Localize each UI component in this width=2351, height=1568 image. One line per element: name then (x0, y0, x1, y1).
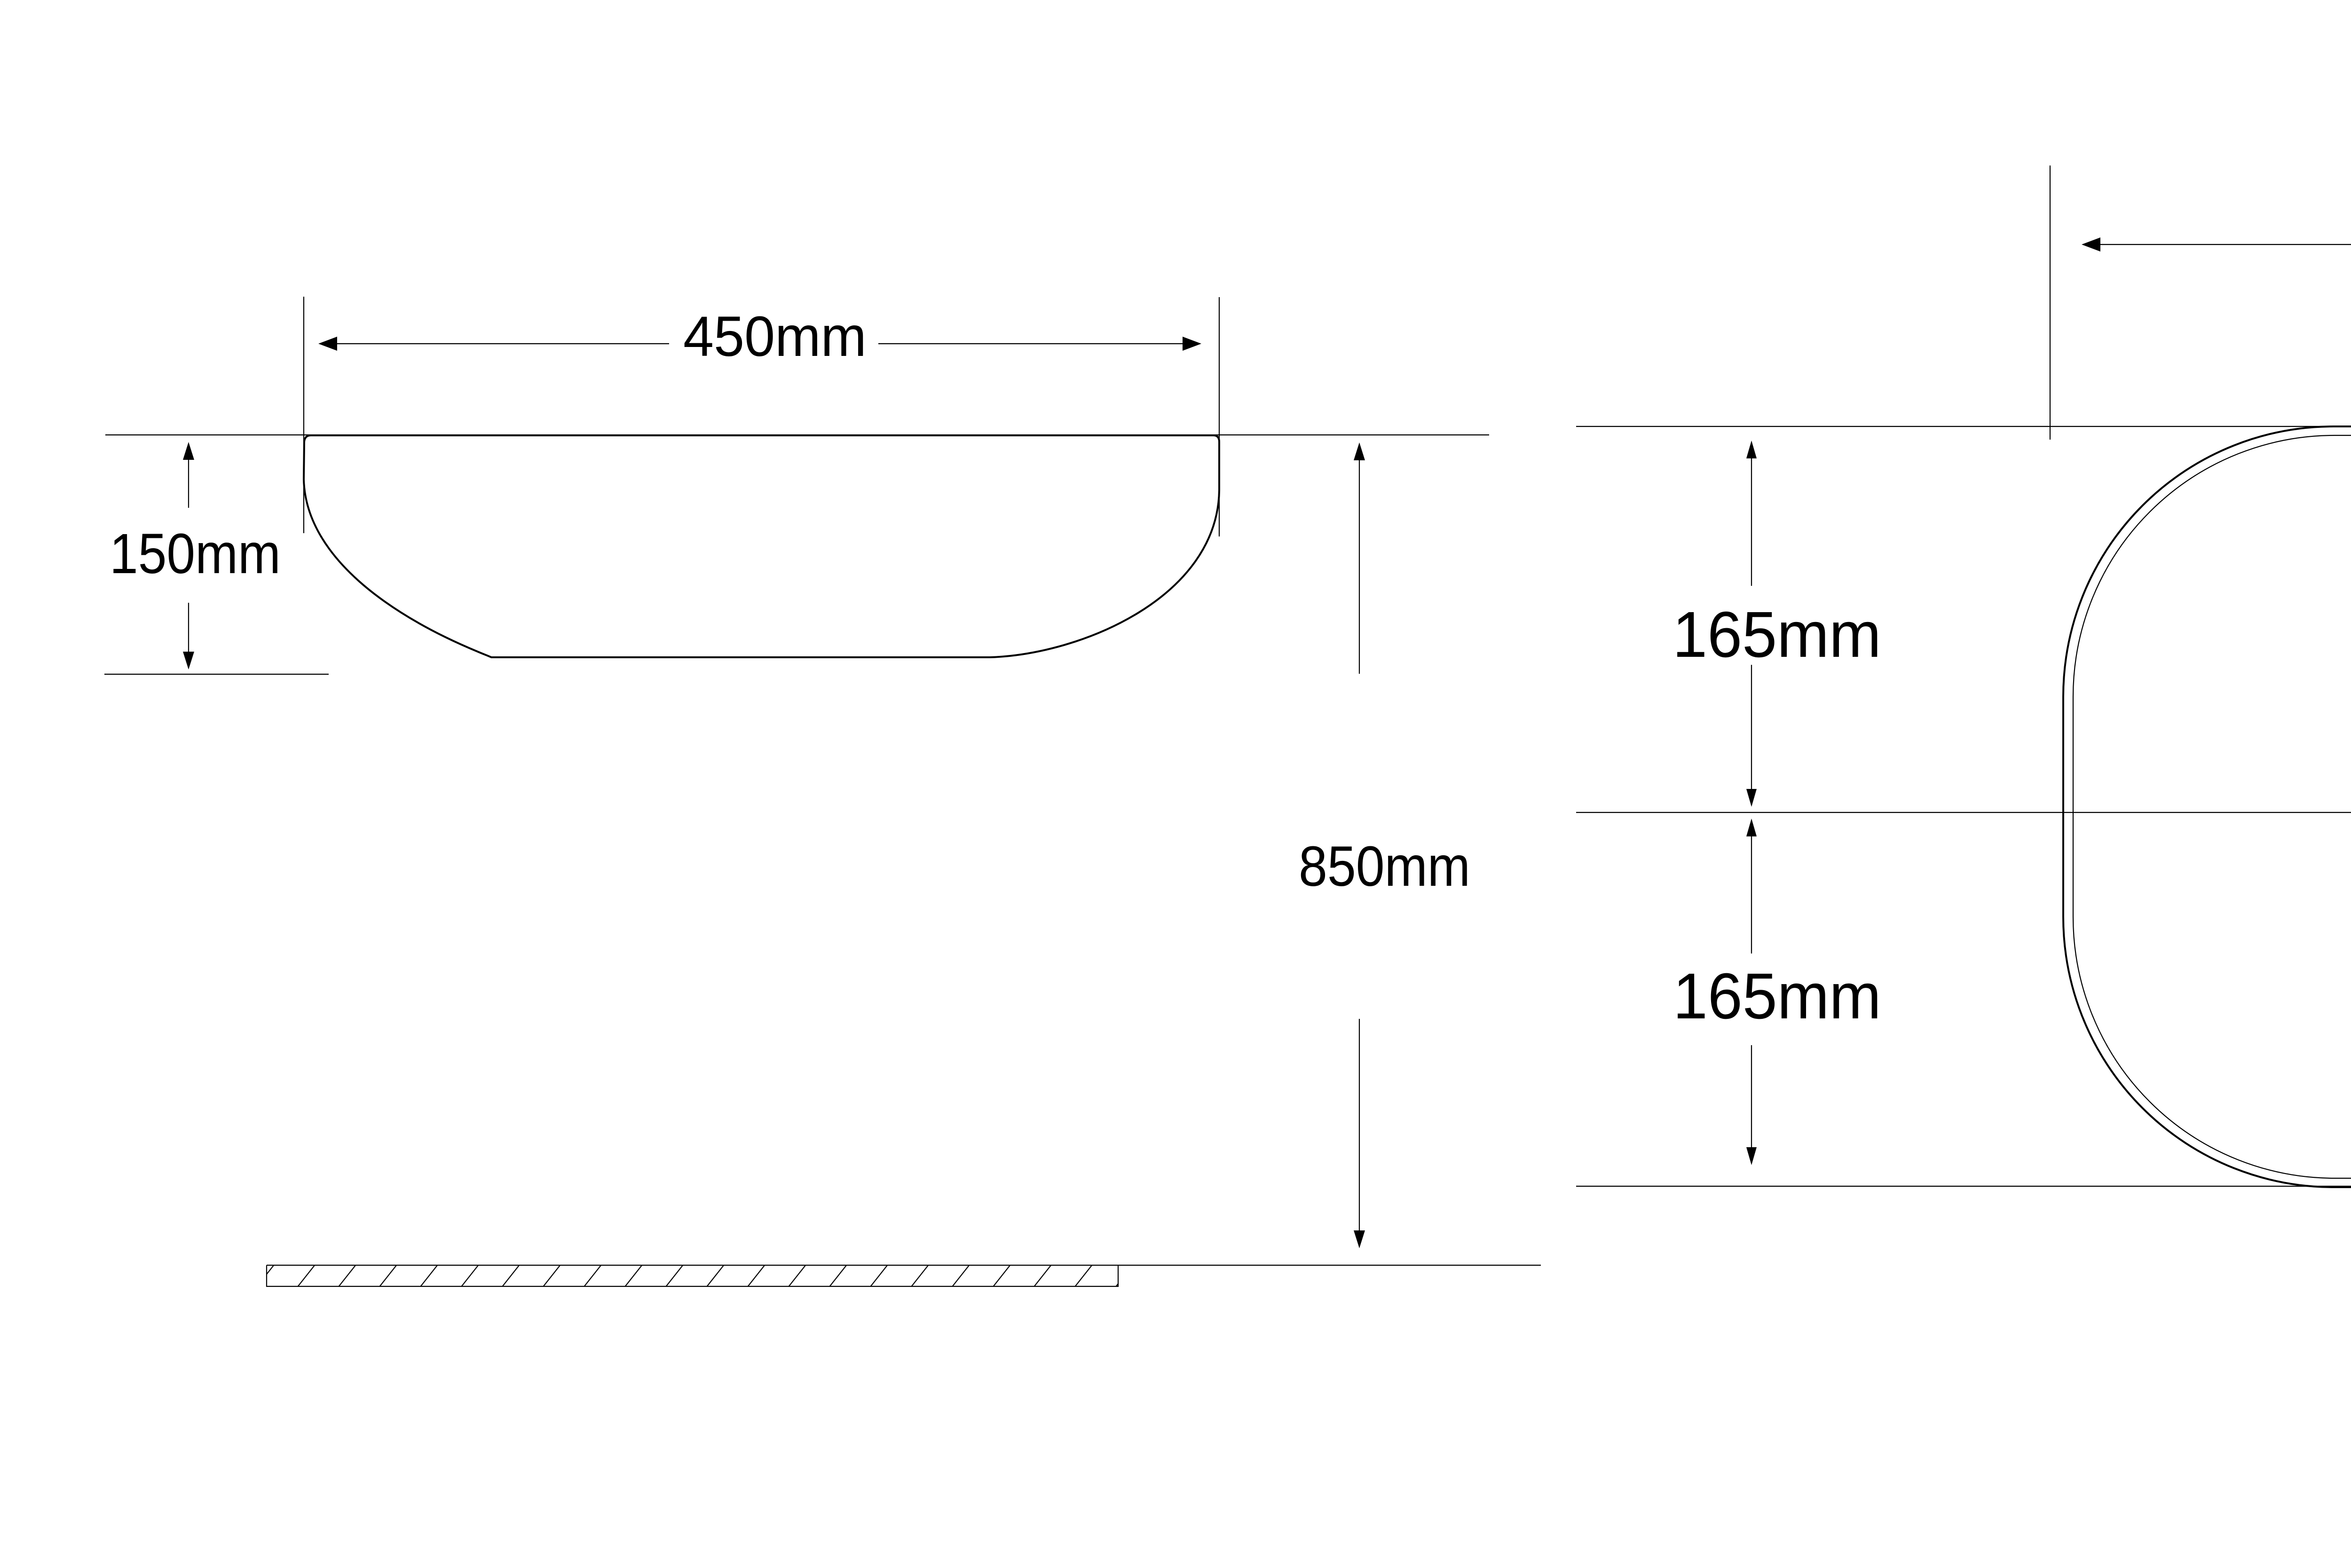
svg-text:850mm: 850mm (1299, 834, 1470, 898)
svg-text:150mm: 150mm (110, 521, 281, 585)
svg-text:165mm: 165mm (1673, 599, 1881, 671)
svg-text:165mm: 165mm (1673, 960, 1881, 1032)
svg-text:450mm: 450mm (683, 304, 867, 368)
